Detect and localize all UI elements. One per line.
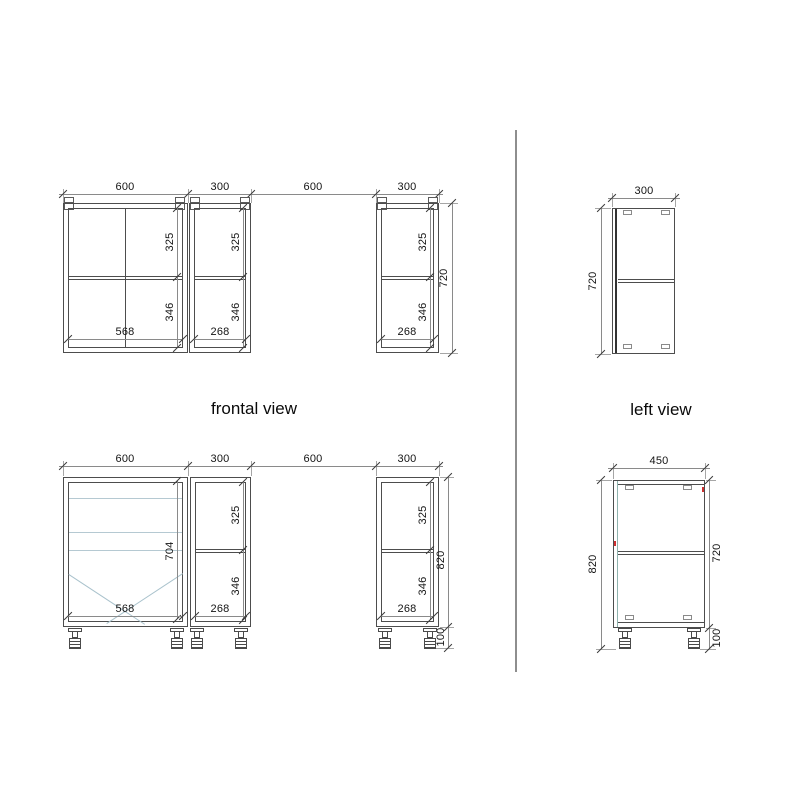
shelf-line	[196, 549, 245, 550]
dim-label-inner-width: 568	[116, 326, 135, 338]
dim-label-inner-width: 568	[116, 603, 135, 615]
bottom-panel-line	[618, 622, 704, 623]
dim-label-width: 300	[211, 453, 230, 465]
dimension-line	[195, 616, 246, 617]
dim-label-width: 600	[116, 181, 135, 193]
dimension-line	[601, 480, 602, 649]
dimension-line	[709, 480, 710, 649]
dim-label-body-height: 720	[711, 544, 723, 563]
shelf-line	[382, 549, 433, 550]
dim-label-width: 600	[116, 453, 135, 465]
dimension-line	[608, 198, 680, 199]
door-front-edge	[615, 209, 617, 353]
connector-notch	[623, 210, 632, 215]
shelf-line	[69, 276, 183, 277]
shelf-line	[69, 279, 183, 280]
connector-notch	[623, 344, 632, 349]
frontal-view-label: frontal view	[193, 399, 315, 419]
dim-label-upper: 325	[164, 233, 176, 252]
dim-label-upper: 325	[230, 233, 242, 252]
dim-label-inner-width: 268	[211, 326, 230, 338]
connector-notch	[625, 485, 634, 490]
dim-label-width: 300	[211, 181, 230, 193]
hinge-marker	[614, 541, 616, 546]
dim-label-depth: 300	[635, 185, 654, 197]
dim-label-width: 300	[398, 181, 417, 193]
shelf-line	[195, 276, 245, 277]
adjustable-leg	[68, 628, 82, 649]
dimension-line	[601, 208, 602, 354]
dimension-line	[381, 339, 434, 340]
dimension-line	[430, 208, 431, 348]
connector-notch	[683, 485, 692, 490]
connector-notch	[683, 615, 692, 620]
extension-line	[595, 354, 611, 355]
extension-line	[595, 208, 611, 209]
dim-label-upper: 325	[417, 233, 429, 252]
connector-notch	[661, 210, 670, 215]
dim-label-upper: 325	[230, 506, 242, 525]
adjustable-leg	[234, 628, 248, 649]
dimension-line	[194, 339, 246, 340]
dimension-line	[243, 482, 244, 620]
dimension-line	[430, 482, 431, 620]
dim-label-lower: 346	[417, 577, 429, 596]
dim-label-height: 720	[587, 272, 599, 291]
dimension-line	[68, 339, 183, 340]
dimension-line	[448, 477, 449, 648]
dim-label-depth: 450	[650, 455, 669, 467]
shelf-line	[618, 554, 704, 555]
adjustable-leg	[687, 628, 701, 649]
adjustable-leg	[170, 628, 184, 649]
dimension-line	[177, 481, 178, 619]
adjustable-leg	[618, 628, 632, 649]
dimension-line	[177, 208, 178, 348]
dim-label-total-height: 820	[587, 555, 599, 574]
dim-label-width: 300	[398, 453, 417, 465]
drawer-rail-line	[69, 532, 182, 533]
dim-label-total-height: 820	[435, 551, 447, 570]
dim-label-upper: 325	[417, 506, 429, 525]
dimension-line	[608, 468, 710, 469]
technical-drawing-canvas: 600 300 600 300 325 346 568	[0, 0, 800, 800]
left-view-label: left view	[616, 400, 706, 420]
dim-label-inner-width: 268	[211, 603, 230, 615]
dimension-line	[381, 616, 434, 617]
drawer-rail-line	[69, 498, 182, 499]
shelf-line	[618, 551, 704, 552]
dimension-line	[243, 208, 244, 348]
hinge-marker	[702, 487, 704, 492]
dim-label-inner-width: 268	[398, 326, 417, 338]
dim-label-lower: 346	[164, 303, 176, 322]
shelf-line	[618, 279, 674, 280]
shelf-line	[618, 282, 674, 283]
wall-cabinet-side-outline	[612, 208, 675, 354]
view-divider-line	[515, 130, 517, 672]
dimension-line	[68, 616, 183, 617]
dim-label-lower: 346	[417, 303, 429, 322]
dim-label-plinth: 100	[711, 629, 723, 648]
shelf-line	[382, 276, 433, 277]
dimension-line	[452, 203, 453, 353]
dim-label-inner-width: 268	[398, 603, 417, 615]
dim-label-lower: 346	[230, 577, 242, 596]
dim-label-height: 720	[438, 269, 450, 288]
connector-notch	[625, 615, 634, 620]
adjustable-leg	[378, 628, 392, 649]
dim-label-front-height: 704	[164, 542, 176, 561]
adjustable-leg	[423, 628, 437, 649]
adjustable-leg	[190, 628, 204, 649]
dim-label-lower: 346	[230, 303, 242, 322]
dim-label-width: 600	[304, 181, 323, 193]
dim-label-width: 600	[304, 453, 323, 465]
connector-notch	[661, 344, 670, 349]
